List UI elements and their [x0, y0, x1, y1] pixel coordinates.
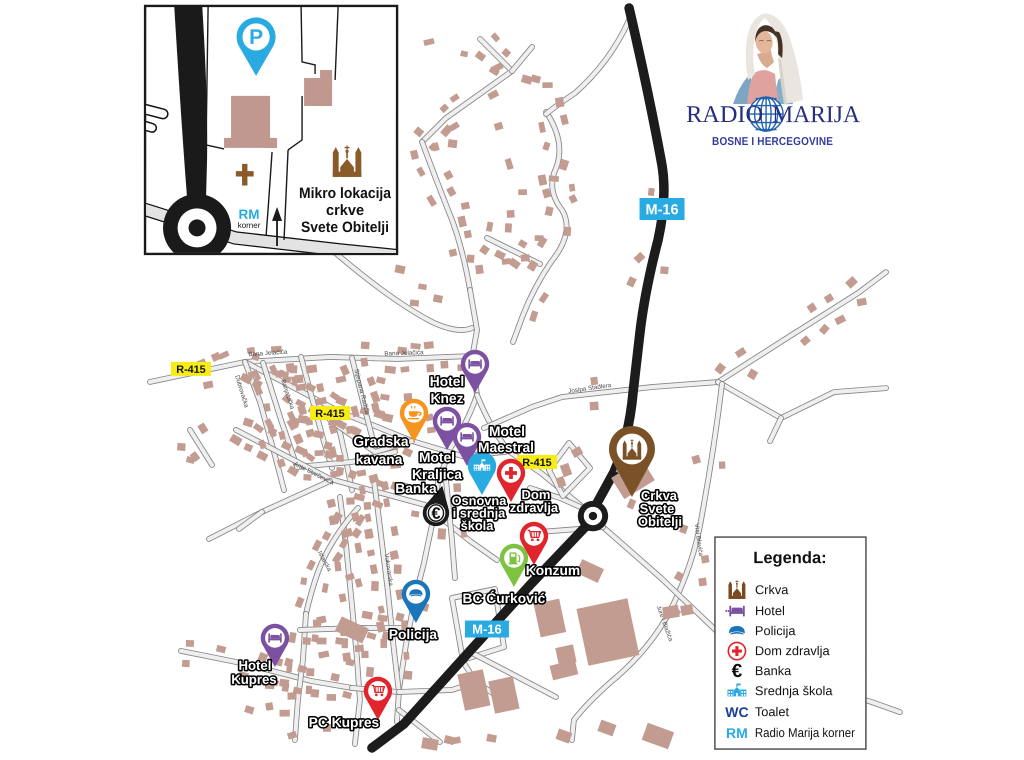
svg-text:WC: WC: [725, 704, 748, 720]
svg-text:Gradska: Gradska: [353, 434, 409, 449]
svg-text:Hotel: Hotel: [238, 658, 271, 673]
svg-text:P: P: [249, 26, 263, 49]
svg-text:Radio Marija korner: Radio Marija korner: [755, 725, 856, 740]
svg-text:PC Kupres: PC Kupres: [309, 715, 380, 730]
svg-text:korner: korner: [238, 221, 261, 230]
svg-text:BOSNE I HERCEGOVINE: BOSNE I HERCEGOVINE: [712, 136, 833, 148]
svg-text:M-16: M-16: [472, 622, 502, 637]
svg-text:Knez: Knez: [431, 391, 464, 406]
svg-text:MARIJA: MARIJA: [772, 102, 861, 128]
svg-text:Konzum: Konzum: [526, 563, 580, 578]
svg-text:Obitelji: Obitelji: [638, 514, 682, 529]
svg-text:RM: RM: [239, 207, 260, 222]
svg-text:Maestral: Maestral: [478, 440, 534, 455]
svg-text:škola: škola: [461, 518, 495, 533]
svg-text:Toalet: Toalet: [755, 704, 790, 719]
svg-text:Kupres: Kupres: [231, 672, 276, 687]
svg-text:Srednja škola: Srednja škola: [755, 683, 833, 698]
svg-text:RM: RM: [726, 725, 748, 741]
svg-text:Bana Jelačića: Bana Jelačića: [384, 349, 424, 357]
svg-text:Policija: Policija: [389, 627, 438, 642]
svg-text:R-415: R-415: [315, 408, 344, 420]
svg-text:M-16: M-16: [646, 202, 679, 218]
svg-text:Mikro lokacija: Mikro lokacija: [299, 185, 392, 202]
svg-text:Svete Obitelji: Svete Obitelji: [301, 219, 389, 236]
svg-text:Banka: Banka: [755, 663, 792, 678]
svg-text:Banka: Banka: [395, 481, 437, 496]
svg-text:zdravlja: zdravlja: [510, 500, 559, 515]
svg-text:BC Ćurković: BC Ćurković: [463, 589, 546, 606]
svg-text:Legenda:: Legenda:: [753, 549, 826, 567]
svg-text:crkve: crkve: [326, 202, 364, 219]
svg-text:Policija: Policija: [755, 623, 796, 638]
svg-text:Hotel: Hotel: [755, 603, 785, 618]
svg-text:kavana: kavana: [356, 452, 403, 467]
svg-text:Crkva: Crkva: [755, 582, 789, 597]
svg-text:€: €: [732, 661, 743, 682]
svg-text:RADIO: RADIO: [686, 102, 763, 128]
svg-text:Kraljica: Kraljica: [412, 467, 462, 482]
svg-text:R-415: R-415: [176, 364, 205, 376]
svg-text:Dom zdravlja: Dom zdravlja: [755, 643, 831, 658]
svg-text:Motel: Motel: [489, 424, 525, 439]
svg-text:Motel: Motel: [419, 450, 455, 465]
svg-text:Hotel: Hotel: [430, 374, 465, 389]
svg-text:€: €: [431, 505, 440, 523]
svg-text:R-415: R-415: [522, 457, 551, 469]
